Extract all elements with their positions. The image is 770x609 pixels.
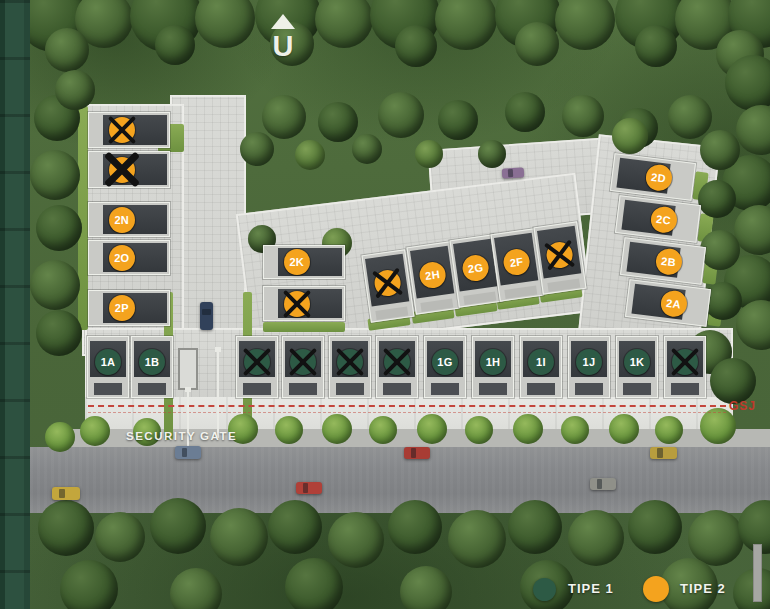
garage-door — [336, 383, 363, 395]
bush — [700, 408, 736, 444]
lot-2P: 2P — [88, 290, 170, 326]
tree — [704, 282, 742, 320]
tree — [170, 568, 222, 609]
tree — [328, 512, 384, 568]
tree — [710, 358, 756, 404]
garage-door — [527, 383, 554, 395]
tree — [700, 130, 740, 170]
lot-mid-pair-crossed-1 — [263, 286, 345, 321]
tree — [438, 100, 478, 140]
garage-door — [623, 383, 650, 395]
tree — [60, 560, 118, 609]
lot-1J: 1J — [568, 336, 610, 398]
cross-mark — [106, 154, 138, 186]
unit-badge-1B: 1B — [139, 349, 165, 375]
unit-badge-1H: 1H — [480, 349, 506, 375]
garage-door — [431, 383, 458, 395]
north-arrow-icon — [271, 14, 295, 29]
tree — [628, 500, 682, 554]
cross-mark — [241, 346, 273, 378]
garage-door — [547, 279, 580, 292]
lot-front-row-crossed-2 — [236, 336, 278, 398]
tree — [505, 92, 545, 132]
car-window — [508, 169, 513, 177]
unit-badge-crossed — [373, 268, 402, 297]
yellow-car — [52, 487, 80, 500]
unit-badge-1J: 1J — [576, 349, 602, 375]
unit-badge-crossed — [545, 240, 574, 269]
garage-door — [504, 286, 537, 299]
setback-label: GSJ — [729, 399, 756, 413]
lot-1B: 1B — [131, 336, 173, 398]
tree — [36, 205, 82, 251]
cross-mark — [106, 114, 138, 146]
lot-2K: 2K — [263, 245, 345, 279]
tree — [36, 310, 82, 356]
garage-door — [463, 292, 496, 305]
car-window — [202, 309, 212, 315]
lot-1G: 1G — [424, 336, 466, 398]
lot-1A: 1A — [87, 336, 129, 398]
unit-badge-crossed — [109, 117, 135, 143]
garage-door — [671, 383, 698, 395]
tree — [698, 180, 736, 218]
bush — [45, 422, 75, 452]
tree — [688, 510, 744, 566]
car-window — [657, 448, 663, 457]
tree — [400, 566, 452, 609]
cross-mark — [541, 237, 577, 273]
tree — [262, 95, 306, 139]
garage-door — [479, 383, 506, 395]
tree — [435, 0, 497, 50]
car-window — [597, 479, 603, 488]
unit-badge-2P: 2P — [109, 295, 135, 321]
unit-badge-1K: 1K — [624, 349, 650, 375]
bush — [275, 416, 303, 444]
cross-mark — [287, 346, 319, 378]
tree — [30, 260, 80, 310]
tree — [736, 105, 770, 155]
cross-mark — [381, 346, 413, 378]
unit-badge-crossed — [337, 349, 363, 375]
tree — [150, 498, 206, 554]
vertical-scrollbar[interactable] — [753, 544, 762, 602]
lot-2N: 2N — [88, 202, 170, 237]
car-window — [303, 483, 309, 492]
tree — [210, 508, 268, 566]
garage-door — [575, 383, 602, 395]
lot-left-column-crossed-0 — [88, 112, 170, 148]
tree — [635, 25, 677, 67]
bush — [655, 416, 683, 444]
lot-front-row-crossed-3 — [282, 336, 324, 398]
tree — [240, 132, 274, 166]
tree — [388, 500, 442, 554]
tree — [555, 0, 615, 50]
tree — [378, 92, 424, 138]
car-window — [411, 448, 417, 457]
tree — [668, 95, 712, 139]
tree — [95, 512, 145, 562]
security-label: SECURITY — [126, 430, 196, 442]
cross-mark — [334, 346, 366, 378]
lot-1K: 1K — [616, 336, 658, 398]
unit-badge-2N: 2N — [109, 207, 135, 233]
bush — [609, 414, 639, 444]
tree — [736, 300, 770, 350]
setback-line-2 — [88, 412, 726, 413]
garage-door — [94, 383, 121, 395]
grey-blue-car-at-gate — [175, 446, 201, 459]
cross-mark — [369, 265, 405, 301]
gate-label: GATE — [200, 430, 237, 442]
garage-door — [138, 383, 165, 395]
tree — [195, 0, 255, 48]
lot-left-column-crossed-1 — [88, 151, 170, 188]
tree — [45, 28, 89, 72]
cross-mark — [281, 288, 313, 320]
tree — [55, 70, 95, 110]
tree — [352, 134, 382, 164]
tree — [612, 118, 648, 154]
tree — [562, 95, 604, 137]
red-car — [296, 482, 322, 494]
tree — [30, 150, 80, 200]
navy-car-driveway — [200, 302, 213, 330]
tree — [725, 55, 770, 111]
north-indicator: U — [261, 14, 305, 61]
unit-badge-1G: 1G — [432, 349, 458, 375]
lot-1H: 1H — [472, 336, 514, 398]
lot-front-row-crossed-5 — [376, 336, 418, 398]
tree — [415, 140, 443, 168]
lawn-strip — [263, 322, 345, 332]
cross-mark — [669, 346, 701, 378]
car-window — [59, 489, 65, 499]
garage-door — [420, 299, 453, 312]
lot-2O: 2O — [88, 240, 170, 275]
tree — [295, 140, 325, 170]
tree — [38, 500, 94, 556]
setback-line — [88, 405, 726, 407]
unit-badge-2O: 2O — [109, 245, 135, 271]
unit-badge-crossed — [109, 157, 135, 183]
tree — [155, 25, 195, 65]
left-panel-edge — [0, 0, 30, 609]
tree — [508, 500, 562, 554]
legend-type1-dot — [533, 578, 556, 601]
unit-badge-crossed — [290, 349, 316, 375]
tree — [515, 22, 559, 66]
lot-1I: 1I — [520, 336, 562, 398]
tree — [700, 230, 740, 270]
tree — [315, 0, 373, 48]
legend-type1-label: TIPE 1 — [568, 581, 614, 596]
unit-badge-1A: 1A — [95, 349, 121, 375]
lot-front-row-crossed-11 — [664, 336, 706, 398]
unit-badge-crossed — [284, 291, 310, 317]
yellow-car — [650, 447, 677, 459]
gate-leader-line — [217, 350, 219, 438]
garage-door — [383, 383, 410, 395]
grey-car — [590, 478, 616, 490]
tree — [478, 140, 506, 168]
lot-diagonal-row-crossed-0 — [361, 249, 414, 322]
unit-badge-crossed — [244, 349, 270, 375]
garage-door — [375, 307, 408, 320]
bush — [513, 414, 543, 444]
unit-badge-1I: 1I — [528, 349, 554, 375]
tree — [733, 568, 770, 609]
legend-type2-label: TIPE 2 — [680, 581, 726, 596]
bush — [561, 416, 589, 444]
garage-door — [289, 383, 316, 395]
garage-door — [243, 383, 270, 395]
north-label: U — [261, 32, 305, 61]
bush — [369, 416, 397, 444]
tree — [268, 500, 322, 554]
unit-badge-crossed — [384, 349, 410, 375]
bush — [465, 416, 493, 444]
red-car — [404, 447, 430, 459]
tree — [395, 25, 437, 67]
tree — [285, 558, 343, 609]
unit-badge-crossed — [672, 349, 698, 375]
tree — [568, 510, 624, 566]
lot-diagonal-row-crossed-4 — [533, 221, 586, 294]
bush — [417, 414, 447, 444]
tree — [448, 510, 506, 568]
legend-type2-dot — [643, 576, 669, 602]
car-window — [182, 448, 188, 458]
lot-front-row-crossed-4 — [329, 336, 371, 398]
bush — [80, 416, 110, 446]
security-post — [178, 348, 198, 390]
unit-badge-2K: 2K — [284, 249, 310, 275]
tree — [318, 102, 358, 142]
purple-car-parked — [502, 167, 524, 178]
bush — [322, 414, 352, 444]
site-plan: 2N2O2P2K2H2G2F2D2C2B2A1A1B1G1H1I1J1K U S… — [0, 0, 770, 609]
